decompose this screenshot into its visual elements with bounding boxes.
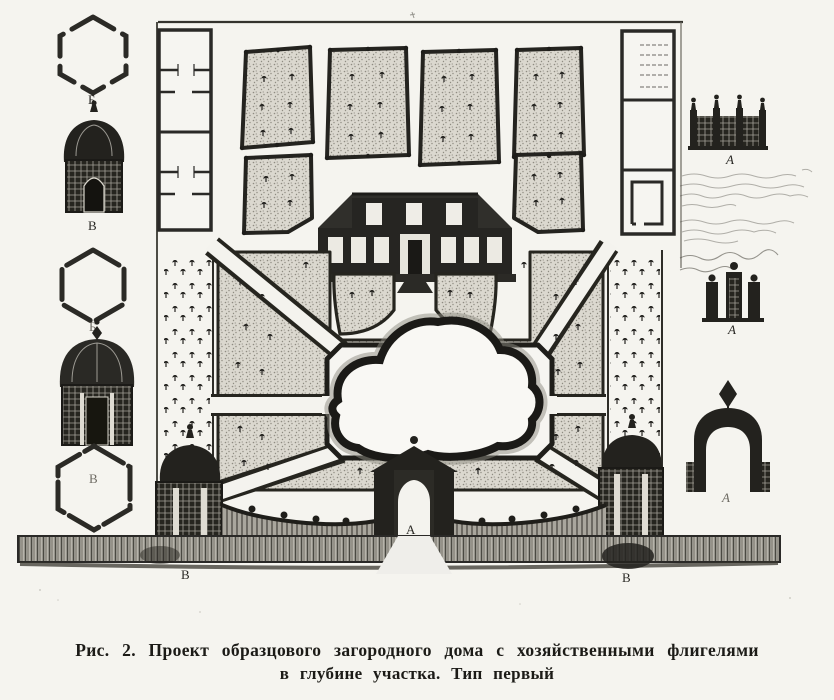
- central-gate-label: А: [406, 522, 416, 537]
- gate-pier-elevation-sketch: А: [702, 262, 764, 337]
- arched-gateway-sketch: А: [686, 380, 770, 505]
- wall-right-label: В: [622, 570, 631, 585]
- estate-plan-engraving: А В В Б В Б В: [0, 0, 834, 634]
- left-legend-column: Б В Б В: [58, 17, 134, 530]
- hexagon-3-label: В: [89, 471, 98, 486]
- wall-left-label: В: [181, 567, 190, 582]
- handwritten-annotation-block: [680, 169, 812, 243]
- figure-caption-line-2: в глубине участка. Тип первый: [0, 664, 834, 684]
- pavilion-1-label: В: [88, 218, 97, 233]
- domed-pavilion-sketch-1: [64, 100, 124, 212]
- court-bed-left: [334, 274, 394, 334]
- figure-caption-line-1: Рис. 2. Проект образцового загородного д…: [0, 640, 834, 661]
- gate-elevation-label: А: [727, 322, 736, 337]
- hexagon-plan-1: [60, 17, 126, 93]
- arch-elevation-label: А: [721, 490, 730, 505]
- hexagon-plan-2: [62, 250, 124, 322]
- hexagon-plan-3: [58, 446, 130, 530]
- top-center-mark: [410, 12, 415, 18]
- right-service-wing-plan: [622, 31, 674, 234]
- fence-elevation-sketch: А: [688, 95, 768, 167]
- fence-elevation-label: А: [725, 152, 734, 167]
- figure-caption: Рис. 2. Проект образцового загородного д…: [0, 640, 834, 684]
- handwritten-annotation-line: [680, 250, 778, 272]
- right-margin-sketches: А А: [680, 95, 812, 505]
- trellis-pavilion-sketch-2: [60, 319, 134, 445]
- left-service-wing-plan: [159, 30, 211, 230]
